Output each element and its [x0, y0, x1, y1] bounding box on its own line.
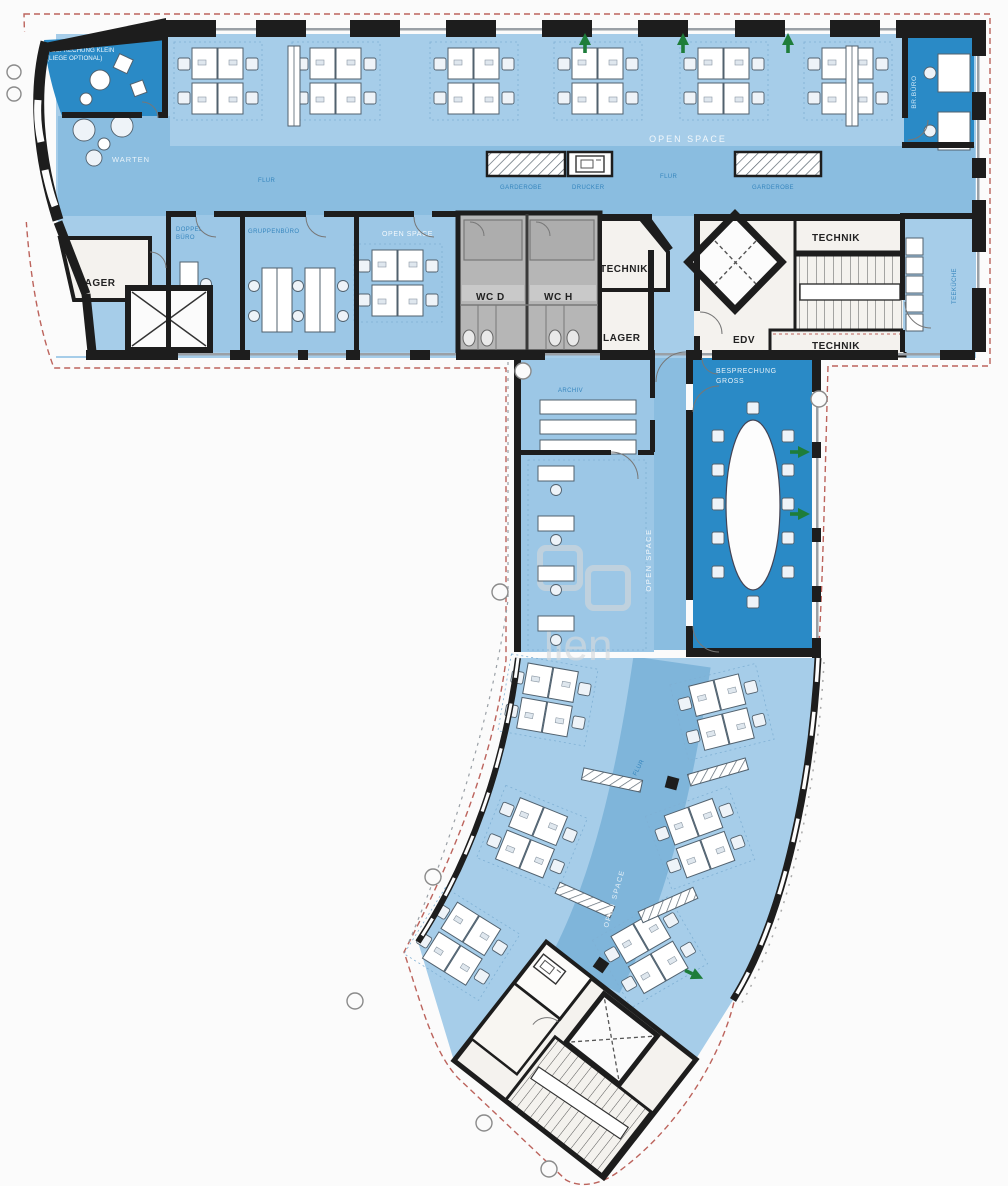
label-besprechung-gross-2: GROSS [716, 378, 744, 385]
label-edv: EDV [733, 335, 755, 346]
label-garderobe-2: GARDEROBE [752, 185, 794, 191]
label-drucker: DRUCKER [572, 185, 605, 191]
room-br-buero: BR.BÜRO [904, 36, 974, 150]
label-doppelbuero-2: BÜRO [176, 234, 195, 241]
floor-plan-drawing: lien BESPRECHUNG KLEIN (LIEGE OPTIONAL) … [0, 0, 1008, 1186]
label-open-space-middle: OPEN SPACE [644, 528, 653, 591]
room-besprechung-gross: BESPRECHUNG GROSS [693, 358, 812, 650]
wc-block: WC D WC H [458, 213, 600, 352]
label-flur-left: FLUR [258, 178, 276, 184]
label-wc-d: WC D [476, 292, 505, 303]
service-block-right: EDV TECHNIK TECHNIK [688, 214, 905, 358]
room-teekueche: TEEKÜCHE [903, 218, 973, 352]
label-flur-top: FLUR [660, 174, 678, 180]
label-wc-h: WC H [544, 292, 573, 303]
label-archiv: ARCHIV [558, 388, 583, 394]
label-teekueche: TEEKÜCHE [951, 268, 958, 304]
label-warten: WARTEN [112, 155, 150, 164]
label-besprechung-gross: BESPRECHUNG [716, 368, 777, 375]
label-garderobe-1: GARDEROBE [500, 185, 542, 191]
label-besprechung-klein-2: (LIEGE OPTIONAL) [47, 55, 102, 62]
label-technik-top-right: TECHNIK [812, 233, 860, 244]
label-open-space-top: OPEN SPACE [649, 134, 727, 144]
label-lager-mid: LAGER [603, 333, 641, 344]
floor-plan-page: lien BESPRECHUNG KLEIN (LIEGE OPTIONAL) … [0, 0, 1008, 1186]
label-technik-mid: TECHNIK [600, 264, 648, 275]
label-gruppenbuero: GRUPPENBÜRO [248, 228, 299, 235]
label-br-buero: BR.BÜRO [910, 75, 918, 108]
label-open-space-left: OPEN SPACE [382, 231, 433, 238]
